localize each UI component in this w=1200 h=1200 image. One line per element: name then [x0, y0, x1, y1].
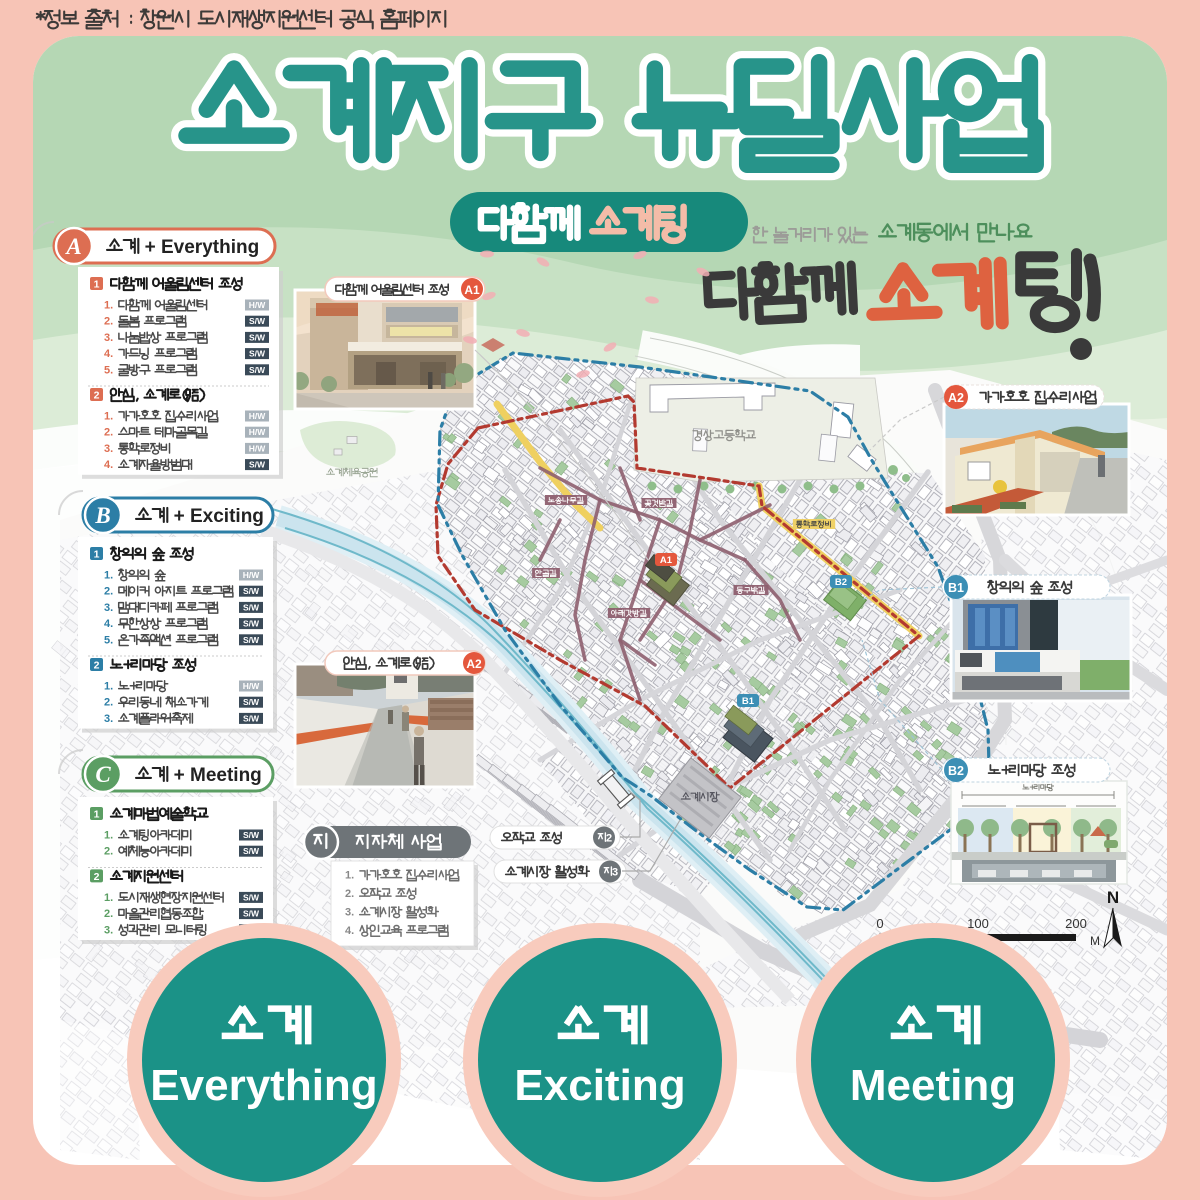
- svg-text:S/W: S/W: [243, 586, 260, 596]
- svg-text:S/W: S/W: [249, 460, 266, 470]
- svg-text:3.: 3.: [104, 443, 113, 455]
- svg-text:2: 2: [94, 390, 100, 402]
- svg-text:3.: 3.: [104, 602, 113, 614]
- svg-text:A: A: [64, 234, 81, 259]
- svg-text:3.: 3.: [104, 713, 113, 725]
- svg-text:S/W: S/W: [243, 830, 260, 840]
- svg-text:H/W: H/W: [243, 570, 261, 580]
- svg-text:2.: 2.: [104, 846, 113, 858]
- svg-text:S/W: S/W: [243, 909, 260, 919]
- svg-text:0: 0: [876, 916, 883, 931]
- svg-text:5.: 5.: [104, 634, 113, 646]
- svg-text:2: 2: [94, 660, 100, 672]
- svg-text:A2: A2: [466, 657, 482, 671]
- svg-text:B2: B2: [835, 577, 847, 588]
- svg-text:Exciting: Exciting: [514, 1061, 685, 1110]
- svg-text:S/W: S/W: [243, 892, 260, 902]
- svg-text:2: 2: [94, 871, 100, 883]
- svg-text:2.: 2.: [104, 316, 113, 328]
- svg-text:S/W: S/W: [243, 635, 260, 645]
- svg-text:B1: B1: [742, 696, 755, 707]
- svg-text:1.: 1.: [104, 300, 113, 312]
- svg-text:C: C: [95, 762, 111, 787]
- svg-text:S/W: S/W: [249, 365, 266, 375]
- svg-text:2: 2: [606, 833, 612, 845]
- svg-text:1.: 1.: [104, 411, 113, 423]
- svg-text:S/W: S/W: [243, 602, 260, 612]
- svg-text:1: 1: [94, 549, 100, 561]
- svg-text:S/W: S/W: [249, 349, 266, 359]
- svg-text:H/W: H/W: [243, 681, 261, 691]
- svg-text:A2: A2: [948, 391, 964, 405]
- svg-text:+ Meeting: + Meeting: [174, 765, 262, 786]
- svg-text:1.: 1.: [104, 681, 113, 693]
- svg-text:N: N: [1107, 888, 1119, 907]
- svg-text:3: 3: [612, 867, 618, 879]
- svg-text:Meeting: Meeting: [850, 1061, 1016, 1110]
- svg-text:2.: 2.: [345, 888, 354, 900]
- svg-text:H/W: H/W: [249, 300, 267, 310]
- svg-text:M: M: [1090, 934, 1100, 948]
- svg-text:4.: 4.: [104, 459, 113, 471]
- svg-text:1: 1: [94, 809, 100, 821]
- svg-text:2.: 2.: [104, 697, 113, 709]
- svg-text:3.: 3.: [104, 332, 113, 344]
- svg-text:1.: 1.: [345, 870, 354, 882]
- svg-text:H/W: H/W: [249, 427, 267, 437]
- svg-text:3.: 3.: [345, 907, 354, 919]
- svg-text:5.: 5.: [104, 364, 113, 376]
- svg-text:H/W: H/W: [249, 411, 267, 421]
- svg-text:2.: 2.: [104, 908, 113, 920]
- svg-text:S/W: S/W: [243, 697, 260, 707]
- svg-text:A1: A1: [464, 283, 480, 297]
- svg-text:1.: 1.: [104, 892, 113, 904]
- svg-text:Everything: Everything: [150, 1061, 377, 1110]
- svg-text:3.: 3.: [104, 924, 113, 936]
- svg-text:4.: 4.: [104, 618, 113, 630]
- svg-text:S/W: S/W: [249, 332, 266, 342]
- svg-text:B2: B2: [948, 764, 964, 778]
- svg-text:4.: 4.: [345, 925, 354, 937]
- svg-text:2.: 2.: [104, 586, 113, 598]
- svg-text:S/W: S/W: [249, 316, 266, 326]
- svg-text:200: 200: [1065, 916, 1087, 931]
- svg-text:1.: 1.: [104, 830, 113, 842]
- svg-text:1: 1: [94, 279, 100, 291]
- svg-text:A1: A1: [660, 555, 673, 566]
- svg-text:2.: 2.: [104, 427, 113, 439]
- svg-text:+ Everything: + Everything: [145, 237, 260, 258]
- svg-text:4.: 4.: [104, 348, 113, 360]
- svg-text:B: B: [94, 503, 110, 528]
- svg-text:1.: 1.: [104, 570, 113, 582]
- svg-text:H/W: H/W: [249, 443, 267, 453]
- svg-text:S/W: S/W: [243, 619, 260, 629]
- svg-text:B1: B1: [948, 581, 964, 595]
- svg-text:S/W: S/W: [243, 713, 260, 723]
- svg-text:+ Exciting: + Exciting: [174, 506, 264, 527]
- svg-text:S/W: S/W: [243, 846, 260, 856]
